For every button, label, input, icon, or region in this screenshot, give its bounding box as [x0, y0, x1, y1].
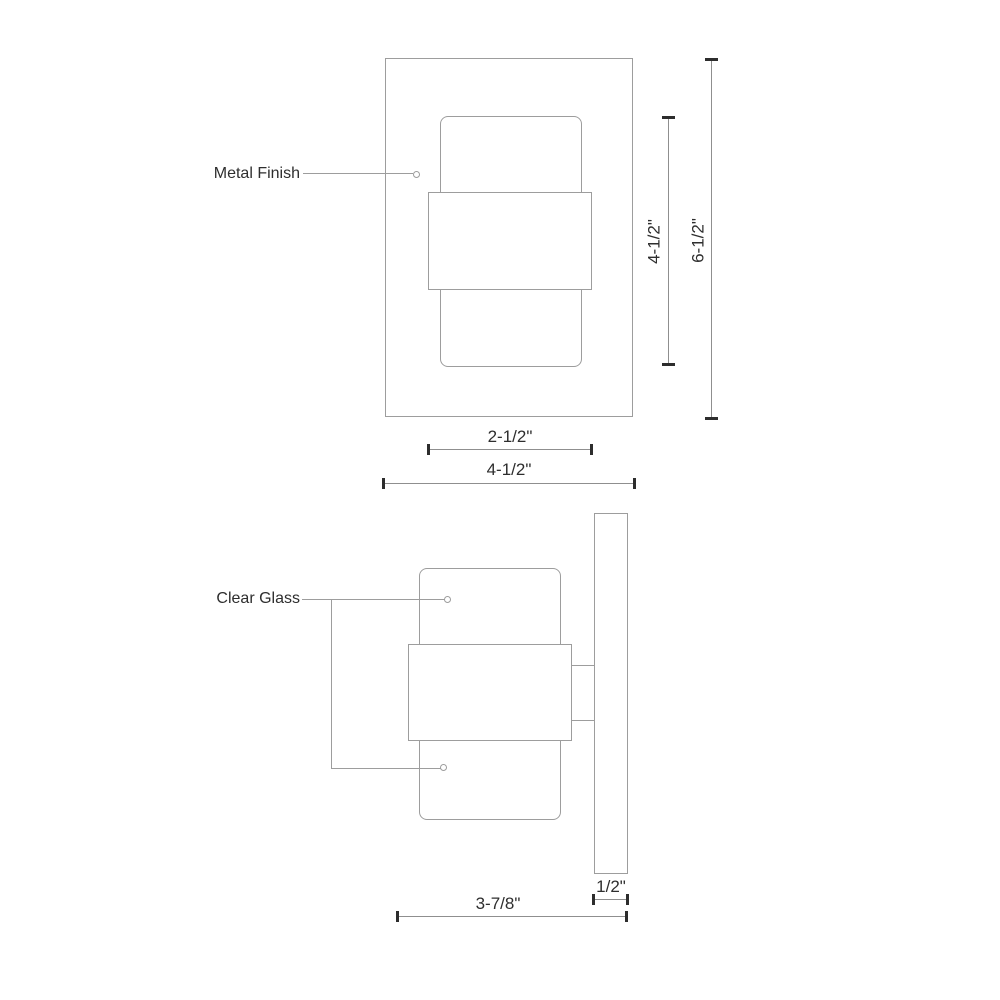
clear-glass-leader-dot-lower	[440, 764, 447, 771]
dim-label-extension: 3-7/8"	[438, 895, 558, 912]
dim-line-extension	[397, 916, 627, 917]
clear-glass-leader-upper	[302, 599, 445, 600]
spec-drawing-canvas: Metal Finish 4-1/2" 6-1/2" 2-1/2" 4-1/2"	[0, 0, 1000, 1000]
dim-tick	[626, 894, 629, 905]
metal-band-side	[408, 644, 572, 741]
clear-glass-leader-dot-upper	[444, 596, 451, 603]
dim-label-backplate-thickness: 1/2"	[576, 878, 646, 895]
side-view: Clear Glass 1/2" 3-7/8"	[0, 0, 1000, 1000]
backplate-side	[594, 513, 628, 874]
clear-glass-leader-lower	[331, 768, 441, 769]
clear-glass-leader-vertical	[331, 599, 332, 769]
clear-glass-label: Clear Glass	[140, 590, 300, 608]
dim-tick	[592, 894, 595, 905]
dim-tick	[396, 911, 399, 922]
mount-arm-bottom-line	[572, 720, 595, 721]
mount-arm-top-line	[572, 665, 595, 666]
dim-line-backplate-thickness	[593, 899, 628, 900]
dim-tick	[625, 911, 628, 922]
